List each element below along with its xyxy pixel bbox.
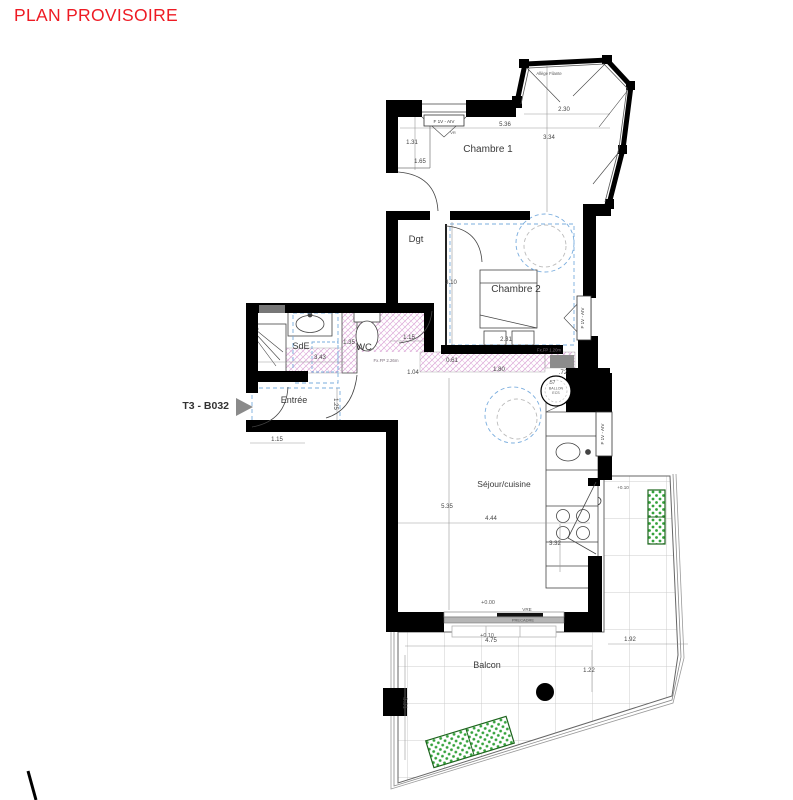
dimension: 1.92 <box>624 637 636 643</box>
room-label-chambre-1: Chambre 1 <box>463 144 513 155</box>
annotation-precadre: PRECADRE <box>512 618 535 623</box>
floor-plan-drawing: T3 - B032 Chambre 1DgtChambre 2SdEWCEntr… <box>0 0 793 800</box>
sink-basin <box>296 316 324 333</box>
annotation-ballon-2: ECS <box>552 391 560 395</box>
dimension: 1.25 <box>332 398 338 410</box>
dimension: Fx.FP 2.26m <box>373 358 398 363</box>
entrance-arrow-icon <box>236 398 253 416</box>
dimension: 3.43 <box>314 355 326 361</box>
annotation-allege: Allège Filante <box>536 71 562 76</box>
nightstand-right <box>512 331 534 345</box>
kitchen-faucet <box>586 450 591 455</box>
annotation-level-10b: +0.10 <box>617 485 629 490</box>
dimension: 3.34 <box>543 135 555 141</box>
hob-burner-4 <box>577 527 590 540</box>
chambre2-door-arc <box>446 226 482 262</box>
dimension: 1.80 <box>493 367 505 373</box>
annotation-level-0: +0.00 <box>481 600 495 606</box>
dimension: 1.22 <box>583 668 595 674</box>
dimension: 2.30 <box>558 107 570 113</box>
dimension: 1.15 <box>403 335 415 341</box>
duct-gray-block <box>550 355 574 368</box>
room-label-wc: WC <box>356 342 372 353</box>
dimension: Fx.FP 1.20m <box>537 348 561 353</box>
bed <box>480 270 537 328</box>
dimension: 0.61 <box>446 358 458 364</box>
room-label-sde: SdE <box>292 341 309 351</box>
kitchen-sink <box>556 443 580 461</box>
annotation-vr: VR <box>450 130 456 135</box>
dimension: 1.65 <box>414 159 426 165</box>
dimension: 3.31 <box>401 697 407 709</box>
dimension: 3.10 <box>445 280 457 286</box>
balcony-column <box>536 683 554 701</box>
room-label-balcon: Balcon <box>473 660 501 670</box>
toilet-tank <box>354 312 380 322</box>
room-labels: Chambre 1DgtChambre 2SdEWCEntréeSéjour/c… <box>281 144 541 670</box>
annotation-vre: VRE <box>522 607 531 612</box>
floor-plan-page: PLAN PROVISOIRE <box>0 0 793 800</box>
page-corner-mark <box>28 771 36 800</box>
chambre2-turning-circle <box>516 214 574 272</box>
dimension: 1.04 <box>407 370 419 376</box>
dimension: 5.36 <box>499 122 511 128</box>
dimension: 3.32 <box>549 541 561 547</box>
window-label-chambre2-window: F 1V - AIV <box>580 307 585 329</box>
room-label-sejour-cuisine: Séjour/cuisine <box>477 479 531 489</box>
sliding-door <box>444 612 564 637</box>
sejour-turning-circle <box>485 387 541 443</box>
sejour-inner-circle <box>497 399 537 439</box>
window-label-chambre1-window: F 1V - AIV <box>434 119 456 124</box>
dimension: 5.35 <box>441 504 453 510</box>
bay-window-inner-line <box>521 64 627 202</box>
annotation-ballon-dim: .57 <box>549 380 556 386</box>
hob-burner-1 <box>557 510 570 523</box>
hatch-band-mid <box>420 352 545 372</box>
vent-block <box>259 305 285 313</box>
room-label-chambre-2: Chambre 2 <box>491 284 541 295</box>
dimension: 4.75 <box>485 638 497 644</box>
dimension: 1.31 <box>406 140 418 146</box>
hob-burner-2 <box>577 510 590 523</box>
dimension: .72 <box>559 370 568 376</box>
wc-door-arc <box>326 375 357 418</box>
sink-faucet <box>308 313 312 317</box>
dimension: 4.44 <box>485 516 497 522</box>
unit-tag: T3 - B032 <box>182 398 253 416</box>
room-label-dgt: Dgt <box>409 234 424 245</box>
window-label-cuisine-window: F 1V - AIV <box>600 423 605 445</box>
hob-burner-3 <box>557 527 570 540</box>
dimension: 2.31 <box>500 337 512 343</box>
bay-window-wall <box>517 60 631 212</box>
room-label-entree: Entrée <box>281 395 308 405</box>
dimension: 1.15 <box>271 437 283 443</box>
chambre1-door-arc <box>398 172 438 211</box>
chambre2-inner-circle <box>524 225 566 267</box>
annotation-ballon-1: BALLON <box>549 387 564 391</box>
dimension: 1.35 <box>343 340 355 346</box>
unit-label: T3 - B032 <box>182 400 229 412</box>
